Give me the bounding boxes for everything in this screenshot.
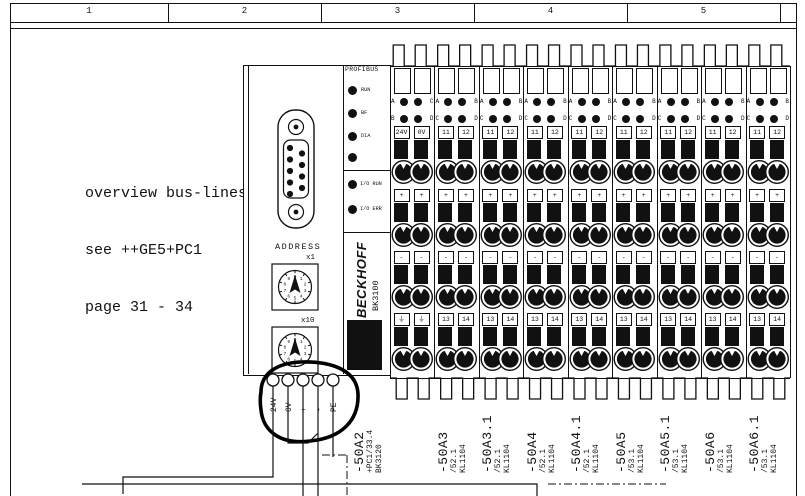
contact-slot: [616, 265, 630, 284]
io-run-led-label: I/O RUN: [360, 181, 382, 187]
terminal-group: 1112: [701, 126, 745, 186]
terminal-point-label: -: [636, 251, 652, 264]
cross-reference: /52.1: [450, 449, 459, 473]
column-number: 3: [395, 6, 400, 16]
terminal-point-label: +: [616, 189, 632, 202]
ruler-tick: [168, 3, 169, 22]
channel-led: [770, 98, 778, 106]
led-letter: D: [741, 114, 745, 123]
led-panel-separator: [343, 170, 390, 171]
channel-led: [533, 98, 541, 106]
led-letter: C: [613, 114, 617, 123]
terminal-screws: [746, 284, 791, 310]
terminal-point-label: 14: [547, 313, 563, 326]
contact-slot: [592, 203, 606, 222]
terminal-point-label: 11: [616, 126, 632, 139]
terminal-screws: [434, 159, 479, 185]
terminal-point-label: -: [438, 251, 454, 264]
device-type: KL1104: [459, 444, 468, 473]
channel-led: [622, 115, 630, 123]
terminal-group: 1314: [434, 313, 478, 373]
channel-led: [400, 98, 408, 106]
contact-slot: [394, 327, 408, 346]
contact-slot: [572, 265, 586, 284]
channel-led: [622, 98, 630, 106]
cross-reference: /52.1: [539, 449, 548, 473]
cross-reference: /53.1: [717, 449, 726, 473]
led-window: [547, 68, 564, 94]
frame-line: [796, 3, 797, 496]
terminal-group: 1314: [568, 313, 612, 373]
terminal-group: 1112: [479, 126, 523, 186]
terminal-point-label: ⏚: [394, 313, 410, 326]
ruler-tick: [796, 3, 797, 22]
terminal-module: ABCD1112++--1314: [746, 66, 790, 376]
led-letter: C: [524, 114, 528, 123]
cross-reference: /53.1: [672, 449, 681, 473]
channel-led: [681, 115, 689, 123]
terminal-point-label: 14: [591, 313, 607, 326]
terminal-group: 1314: [746, 313, 790, 373]
terminal-group: --: [390, 251, 434, 311]
terminal-group: ++: [612, 189, 656, 249]
device-tag: -50A5: [614, 431, 629, 473]
terminal-point-label: 12: [591, 126, 607, 139]
led-panel-separator: [343, 232, 390, 233]
led-letter: C: [430, 97, 434, 106]
terminal-screws: [701, 222, 746, 248]
device-type: KL1104: [726, 444, 735, 473]
contact-slot: [705, 140, 719, 159]
device-type: KL1104: [637, 444, 646, 473]
frame-line: [10, 28, 796, 29]
terminal-point-label: 13: [438, 313, 454, 326]
ruler-tick: [474, 3, 475, 22]
module-divider: [390, 66, 391, 378]
terminal-point-label: 13: [571, 313, 587, 326]
contact-slot: [527, 140, 541, 159]
cross-reference: /53.1: [628, 449, 637, 473]
led-window: [438, 68, 455, 94]
spare-led: [348, 153, 357, 162]
contact-slot: [458, 265, 472, 284]
coupler-connector-block: [347, 320, 382, 370]
terminal-group: --: [701, 251, 745, 311]
terminal-screws: [657, 222, 702, 248]
contact-slot: [705, 265, 719, 284]
terminal-point-label: -: [705, 251, 721, 264]
terminal-group: 1112: [612, 126, 656, 186]
contact-slot: [770, 327, 784, 346]
terminal-screws: [568, 222, 613, 248]
channel-led: [636, 115, 644, 123]
contact-slot: [616, 327, 630, 346]
contact-slot: [547, 203, 561, 222]
led-letter: C: [702, 114, 706, 123]
terminal-point-label: 13: [527, 313, 543, 326]
terminal-screws: [390, 159, 435, 185]
channel-led: [444, 115, 452, 123]
contact-slot: [414, 265, 428, 284]
channel-led: [681, 98, 689, 106]
led-letter: B: [608, 97, 612, 106]
cross-reference: /52.1: [583, 449, 592, 473]
contact-slot: [616, 203, 630, 222]
bf-led: [348, 109, 357, 118]
terminal-point-label: 12: [502, 126, 518, 139]
model-label: BK3100: [371, 280, 381, 311]
coupler-edge-line: [248, 65, 249, 374]
contact-slot: [527, 203, 541, 222]
terminal-point-label: 11: [482, 126, 498, 139]
contact-slot: [636, 203, 650, 222]
channel-led: [458, 115, 466, 123]
channel-led: [725, 115, 733, 123]
channel-led: [578, 115, 586, 123]
terminal-point-label: +: [438, 189, 454, 202]
cross-reference: +PC1/33.4: [366, 430, 375, 473]
led-window: [483, 68, 500, 94]
terminal-screws: [568, 159, 613, 185]
led-letter: C: [480, 114, 484, 123]
channel-led: [458, 98, 466, 106]
channel-led: [444, 98, 452, 106]
terminal-point-label: +: [591, 189, 607, 202]
contact-slot: [592, 140, 606, 159]
led-letter: C: [658, 114, 662, 123]
device-tag: -50A6.1: [747, 415, 762, 473]
terminal-point-label: -: [547, 251, 563, 264]
contact-slot: [681, 140, 695, 159]
column-number: 2: [242, 6, 247, 16]
channel-led: [503, 98, 511, 106]
ruler-tick: [10, 3, 11, 22]
terminal-group: --: [434, 251, 478, 311]
terminal-point-label: -: [482, 251, 498, 264]
terminal-point-label: +: [458, 189, 474, 202]
terminal-point-label: -: [414, 251, 430, 264]
device-type: KL1104: [592, 444, 601, 473]
terminal-point-label: 12: [636, 126, 652, 139]
channel-led: [770, 115, 778, 123]
schematic-sheet: 12345 overview bus-lines see ++GE5+PC1 p…: [0, 0, 805, 496]
terminal-group: 1112: [746, 126, 790, 186]
terminal-group: 24V0V: [390, 126, 434, 186]
contact-slot: [414, 327, 428, 346]
wires: [82, 386, 537, 496]
terminal-screws: [390, 222, 435, 248]
channel-led: [592, 115, 600, 123]
device-type: KL1104: [681, 444, 690, 473]
led-window: [503, 68, 520, 94]
channel-led: [414, 115, 422, 123]
contact-slot: [483, 140, 497, 159]
terminal-point-label: 12: [725, 126, 741, 139]
led-letter: D: [608, 114, 612, 123]
contact-slot: [547, 327, 561, 346]
device-type: KL1104: [548, 444, 557, 473]
terminal-screws: [568, 284, 613, 310]
contact-slot: [592, 265, 606, 284]
terminal-point-label: -: [660, 251, 676, 264]
terminal-point-label: 11: [660, 126, 676, 139]
contact-slot: [681, 327, 695, 346]
channel-led: [414, 98, 422, 106]
terminal-point-label: +: [769, 189, 785, 202]
contact-slot: [572, 203, 586, 222]
terminal-point-label: 0V: [414, 126, 430, 139]
led-letter: A: [480, 97, 484, 106]
contact-slot: [725, 203, 739, 222]
terminal-point-label: 13: [705, 313, 721, 326]
terminal-group: 1314: [701, 313, 745, 373]
terminal-point-label: -: [616, 251, 632, 264]
led-letter: B: [474, 97, 478, 106]
terminal-group: --: [523, 251, 567, 311]
channel-led: [578, 98, 586, 106]
terminal-group: 1314: [523, 313, 567, 373]
note-line: see ++GE5+PC1: [85, 241, 247, 260]
power-terminal-label: +: [300, 407, 309, 412]
contact-slot: [394, 140, 408, 159]
channel-led: [547, 98, 555, 106]
module-divider: [657, 66, 658, 378]
run-led: [348, 86, 357, 95]
note-line: page 31 - 34: [85, 298, 247, 317]
contact-slot: [414, 203, 428, 222]
terminal-group: 1112: [657, 126, 701, 186]
terminal-group: 1314: [479, 313, 523, 373]
terminal-screws: [479, 159, 524, 185]
terminal-group: 1112: [568, 126, 612, 186]
terminal-point-label: 13: [482, 313, 498, 326]
led-letter: D: [652, 114, 656, 123]
contact-slot: [527, 265, 541, 284]
terminal-group: 1112: [523, 126, 567, 186]
column-number: 5: [701, 6, 706, 16]
led-letter: A: [658, 97, 662, 106]
channel-led: [725, 98, 733, 106]
terminal-point-label: 24V: [394, 126, 410, 139]
profibus-title: PROFIBUS: [345, 66, 379, 73]
contact-slot: [572, 140, 586, 159]
terminal-point-label: 13: [616, 313, 632, 326]
terminal-group: --: [657, 251, 701, 311]
contact-slot: [770, 265, 784, 284]
terminal-screws: [612, 284, 657, 310]
terminal-screws: [523, 222, 568, 248]
terminal-screws: [612, 159, 657, 185]
column-number: 4: [548, 6, 553, 16]
contact-slot: [592, 327, 606, 346]
switch-x1-label: x1: [306, 254, 315, 262]
contact-slot: [483, 265, 497, 284]
terminal-group: ++: [479, 189, 523, 249]
terminal-screws: [479, 284, 524, 310]
terminal-group: 1314: [657, 313, 701, 373]
terminal-point-label: 11: [438, 126, 454, 139]
terminal-point-label: +: [660, 189, 676, 202]
contact-slot: [394, 203, 408, 222]
terminal-module: ABCD1112++--1314: [434, 66, 478, 376]
contact-slot: [770, 203, 784, 222]
terminal-point-label: -: [502, 251, 518, 264]
terminal-point-label: 11: [527, 126, 543, 139]
terminal-screws: [390, 284, 435, 310]
contact-slot: [681, 203, 695, 222]
channel-led: [503, 115, 511, 123]
terminal-point-label: +: [527, 189, 543, 202]
terminal-point-label: +: [502, 189, 518, 202]
channel-led: [547, 115, 555, 123]
terminal-point-label: 14: [725, 313, 741, 326]
led-letter: C: [747, 114, 751, 123]
terminal-point-label: +: [482, 189, 498, 202]
device-type: KL1104: [770, 444, 779, 473]
terminal-point-label: 12: [458, 126, 474, 139]
terminal-point-label: 13: [749, 313, 765, 326]
module-divider: [701, 66, 702, 378]
terminal-screws: [434, 222, 479, 248]
channel-led: [711, 115, 719, 123]
terminal-point-label: 12: [547, 126, 563, 139]
channel-led: [667, 115, 675, 123]
terminal-point-label: 14: [458, 313, 474, 326]
terminal-group: ⏚⏚: [390, 313, 434, 373]
contact-slot: [681, 265, 695, 284]
terminal-screws: [701, 159, 746, 185]
terminal-point-label: 11: [571, 126, 587, 139]
terminal-point-label: 12: [769, 126, 785, 139]
terminal-group: ++: [657, 189, 701, 249]
terminal-point-label: -: [527, 251, 543, 264]
strip-top-castellation: [390, 45, 790, 66]
contact-slot: [503, 203, 517, 222]
contact-slot: [616, 140, 630, 159]
led-letter: C: [569, 114, 573, 123]
contact-slot: [750, 140, 764, 159]
contact-slot: [750, 327, 764, 346]
run-led-label: RUN: [361, 87, 370, 93]
contact-slot: [527, 327, 541, 346]
terminal-screws: [612, 222, 657, 248]
frame-line: [10, 3, 11, 496]
led-window: [636, 68, 653, 94]
terminal-point-label: 14: [769, 313, 785, 326]
terminal-group: ++: [746, 189, 790, 249]
terminal-module: ABCD1112++--1314: [479, 66, 523, 376]
module-divider: [612, 66, 613, 378]
terminal-point-label: 13: [660, 313, 676, 326]
led-letter: B: [741, 97, 745, 106]
led-letter: C: [435, 114, 439, 123]
contact-slot: [547, 140, 561, 159]
channel-led: [489, 115, 497, 123]
terminal-screws: [746, 346, 791, 372]
contact-slot: [483, 327, 497, 346]
channel-led: [489, 98, 497, 106]
led-letter: D: [563, 114, 567, 123]
column-number: 1: [86, 6, 91, 16]
terminal-group: ++: [701, 189, 745, 249]
terminal-screws: [434, 346, 479, 372]
terminal-group: ++: [523, 189, 567, 249]
contact-slot: [705, 327, 719, 346]
led-letter: D: [785, 114, 789, 123]
contact-slot: [414, 140, 428, 159]
terminal-group: ++: [390, 189, 434, 249]
module-divider: [790, 66, 791, 378]
contact-slot: [661, 327, 675, 346]
led-letter: A: [435, 97, 439, 106]
terminal-point-label: +: [636, 189, 652, 202]
channel-led: [533, 115, 541, 123]
contact-slot: [636, 140, 650, 159]
led-window: [527, 68, 544, 94]
frame-line: [10, 22, 796, 23]
terminal-group: --: [746, 251, 790, 311]
contact-slot: [438, 265, 452, 284]
contact-slot: [438, 327, 452, 346]
led-window: [592, 68, 609, 94]
terminal-point-label: 14: [636, 313, 652, 326]
contact-slot: [770, 140, 784, 159]
contact-slot: [458, 140, 472, 159]
terminal-group: ++: [568, 189, 612, 249]
channel-led: [636, 98, 644, 106]
strip-bottom-castellation: [390, 378, 790, 399]
channel-led: [592, 98, 600, 106]
terminal-point-label: 12: [680, 126, 696, 139]
terminal-screws: [434, 284, 479, 310]
led-letter: D: [697, 114, 701, 123]
note-line: overview bus-lines: [85, 184, 247, 203]
bf-led-label: BF: [361, 110, 367, 116]
module-divider: [434, 66, 435, 378]
contact-slot: [705, 203, 719, 222]
terminal-group: 1112: [434, 126, 478, 186]
contact-slot: [661, 265, 675, 284]
terminal-screws: [701, 284, 746, 310]
contact-slot: [503, 265, 517, 284]
terminal-group: --: [479, 251, 523, 311]
channel-led: [711, 98, 719, 106]
contact-slot: [636, 327, 650, 346]
led-window: [750, 68, 767, 94]
module-divider: [568, 66, 569, 378]
channel-led: [756, 115, 764, 123]
led-window: [616, 68, 633, 94]
terminal-screws: [479, 222, 524, 248]
terminal-point-label: ⏚: [414, 313, 430, 326]
device-tag: -50A2: [352, 431, 367, 473]
channel-led: [667, 98, 675, 106]
terminal-module: ABCD1112++--1314: [568, 66, 612, 376]
cross-reference: /53.1: [761, 449, 770, 473]
led-letter: B: [519, 97, 523, 106]
terminal-screws: [568, 346, 613, 372]
terminal-group: 1314: [612, 313, 656, 373]
led-letter: D: [430, 114, 434, 123]
device-tag: -50A3: [436, 431, 451, 473]
ruler-tick: [321, 3, 322, 22]
device-type: KL1104: [503, 444, 512, 473]
contact-slot: [636, 265, 650, 284]
strip-border: [390, 378, 790, 379]
terminal-point-label: +: [571, 189, 587, 202]
terminal-screws: [701, 346, 746, 372]
terminal-point-label: -: [725, 251, 741, 264]
